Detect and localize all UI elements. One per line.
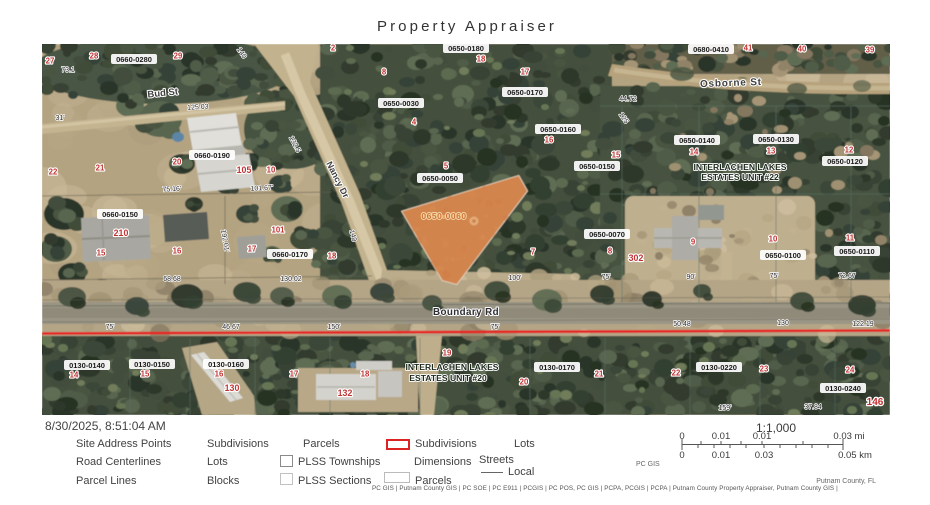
svg-text:122.19: 122.19 bbox=[852, 321, 874, 328]
svg-text:16: 16 bbox=[173, 247, 182, 256]
svg-text:50.48: 50.48 bbox=[673, 321, 691, 328]
svg-text:72.67: 72.67 bbox=[838, 273, 856, 280]
svg-text:27: 27 bbox=[46, 57, 55, 66]
svg-text:0650-0180: 0650-0180 bbox=[448, 44, 484, 53]
svg-text:4: 4 bbox=[412, 118, 417, 127]
svg-text:75': 75' bbox=[601, 274, 610, 281]
svg-text:0130-0240: 0130-0240 bbox=[825, 384, 861, 393]
svg-text:0650-0050: 0650-0050 bbox=[422, 174, 458, 183]
svg-text:0660-0280: 0660-0280 bbox=[116, 55, 152, 64]
svg-text:INTERLACHEN LAKES: INTERLACHEN LAKES bbox=[693, 162, 786, 172]
svg-text:132: 132 bbox=[338, 388, 353, 398]
svg-text:75': 75' bbox=[490, 324, 499, 331]
svg-text:INTERLACHEN LAKES: INTERLACHEN LAKES bbox=[405, 362, 498, 372]
svg-text:8: 8 bbox=[382, 68, 387, 77]
svg-text:22: 22 bbox=[672, 369, 681, 378]
svg-text:302: 302 bbox=[629, 253, 644, 263]
svg-text:24: 24 bbox=[846, 366, 855, 375]
svg-text:0130-0160: 0130-0160 bbox=[208, 360, 244, 369]
svg-text:75.16': 75.16' bbox=[162, 186, 181, 194]
svg-text:14: 14 bbox=[70, 371, 79, 380]
svg-text:18: 18 bbox=[477, 55, 486, 64]
svg-text:15: 15 bbox=[141, 370, 150, 379]
svg-text:0650-0140: 0650-0140 bbox=[679, 136, 715, 145]
svg-text:0.03: 0.03 bbox=[755, 450, 774, 461]
svg-text:Osborne St: Osborne St bbox=[700, 77, 762, 90]
svg-text:0130-0170: 0130-0170 bbox=[539, 363, 575, 372]
svg-text:7: 7 bbox=[531, 248, 535, 257]
svg-text:16: 16 bbox=[215, 370, 224, 379]
svg-text:0130-0220: 0130-0220 bbox=[701, 363, 737, 372]
svg-text:73.1: 73.1 bbox=[61, 67, 75, 74]
svg-text:16: 16 bbox=[545, 136, 554, 145]
svg-text:13: 13 bbox=[767, 147, 776, 156]
svg-text:19: 19 bbox=[443, 349, 452, 358]
svg-text:0650-0150: 0650-0150 bbox=[579, 162, 615, 171]
svg-text:12: 12 bbox=[845, 146, 854, 155]
svg-text:130.02: 130.02 bbox=[280, 276, 302, 283]
svg-text:0650-0130: 0650-0130 bbox=[758, 135, 794, 144]
svg-text:17: 17 bbox=[521, 68, 530, 77]
svg-text:22: 22 bbox=[49, 168, 58, 177]
svg-text:17: 17 bbox=[290, 370, 299, 379]
svg-text:0130-0150: 0130-0150 bbox=[134, 360, 170, 369]
svg-text:0660-0150: 0660-0150 bbox=[102, 210, 138, 219]
svg-text:28: 28 bbox=[90, 52, 99, 61]
svg-text:2: 2 bbox=[331, 44, 336, 53]
svg-text:0650-0160: 0650-0160 bbox=[540, 125, 576, 134]
svg-text:0.01: 0.01 bbox=[712, 450, 731, 461]
svg-text:0680-0410: 0680-0410 bbox=[693, 45, 729, 54]
svg-text:ESTATES UNIT #20: ESTATES UNIT #20 bbox=[409, 373, 487, 383]
svg-text:90': 90' bbox=[686, 274, 695, 281]
svg-text:44.72: 44.72 bbox=[619, 96, 637, 103]
svg-text:15: 15 bbox=[612, 151, 621, 160]
svg-text:130: 130 bbox=[777, 320, 789, 327]
svg-text:0130-0140: 0130-0140 bbox=[69, 361, 105, 370]
svg-text:17: 17 bbox=[248, 245, 257, 254]
svg-text:29: 29 bbox=[174, 52, 183, 61]
svg-text:75': 75' bbox=[105, 324, 114, 331]
svg-text:130: 130 bbox=[225, 383, 240, 393]
svg-text:0.01: 0.01 bbox=[753, 431, 772, 442]
svg-text:101.67': 101.67' bbox=[250, 185, 273, 193]
svg-text:125.03: 125.03 bbox=[187, 103, 209, 111]
svg-text:0650-0170: 0650-0170 bbox=[507, 88, 543, 97]
svg-text:0650-0120: 0650-0120 bbox=[827, 157, 863, 166]
svg-text:0650-0110: 0650-0110 bbox=[839, 247, 874, 256]
svg-text:20: 20 bbox=[173, 158, 182, 167]
svg-text:0.05 km: 0.05 km bbox=[838, 450, 872, 461]
svg-text:21: 21 bbox=[595, 370, 604, 379]
svg-text:41: 41 bbox=[744, 44, 753, 53]
svg-text:68.68: 68.68 bbox=[163, 276, 181, 283]
svg-text:21: 21 bbox=[96, 164, 105, 173]
svg-text:ESTATES UNIT #22: ESTATES UNIT #22 bbox=[701, 172, 779, 182]
svg-text:11: 11 bbox=[846, 234, 855, 243]
svg-text:100': 100' bbox=[508, 275, 521, 282]
svg-text:20: 20 bbox=[520, 378, 529, 387]
svg-text:0.03 mi: 0.03 mi bbox=[833, 431, 864, 442]
svg-text:10: 10 bbox=[267, 166, 276, 175]
svg-text:Boundary Rd: Boundary Rd bbox=[433, 307, 499, 318]
svg-text:18: 18 bbox=[328, 252, 337, 261]
svg-text:159': 159' bbox=[718, 405, 731, 412]
svg-text:0650-0100: 0650-0100 bbox=[765, 251, 801, 260]
svg-text:210: 210 bbox=[114, 228, 129, 238]
svg-text:0.01: 0.01 bbox=[712, 431, 731, 442]
svg-text:37.84: 37.84 bbox=[804, 404, 822, 411]
svg-text:23: 23 bbox=[760, 365, 769, 374]
svg-text:0650-0030: 0650-0030 bbox=[383, 99, 419, 108]
svg-text:101: 101 bbox=[271, 226, 285, 235]
svg-text:46.67: 46.67 bbox=[222, 324, 240, 331]
svg-text:9: 9 bbox=[691, 238, 696, 247]
svg-text:0650-0060: 0650-0060 bbox=[421, 211, 466, 221]
svg-text:150': 150' bbox=[327, 324, 340, 331]
svg-text:8: 8 bbox=[608, 247, 613, 256]
svg-text:0660-0190: 0660-0190 bbox=[194, 151, 230, 160]
svg-text:40: 40 bbox=[798, 45, 807, 54]
svg-text:0660-0170: 0660-0170 bbox=[272, 250, 308, 259]
svg-text:10: 10 bbox=[769, 235, 778, 244]
svg-text:18: 18 bbox=[361, 370, 370, 379]
svg-text:75': 75' bbox=[769, 273, 778, 280]
svg-text:105: 105 bbox=[237, 165, 252, 175]
svg-text:0650-0070: 0650-0070 bbox=[589, 230, 625, 239]
svg-text:146: 146 bbox=[867, 397, 884, 408]
svg-text:0: 0 bbox=[679, 450, 684, 461]
svg-text:15: 15 bbox=[97, 249, 106, 258]
svg-text:14: 14 bbox=[690, 148, 699, 157]
svg-text:31': 31' bbox=[55, 115, 64, 122]
svg-text:5: 5 bbox=[444, 162, 449, 171]
svg-text:39: 39 bbox=[866, 46, 875, 55]
